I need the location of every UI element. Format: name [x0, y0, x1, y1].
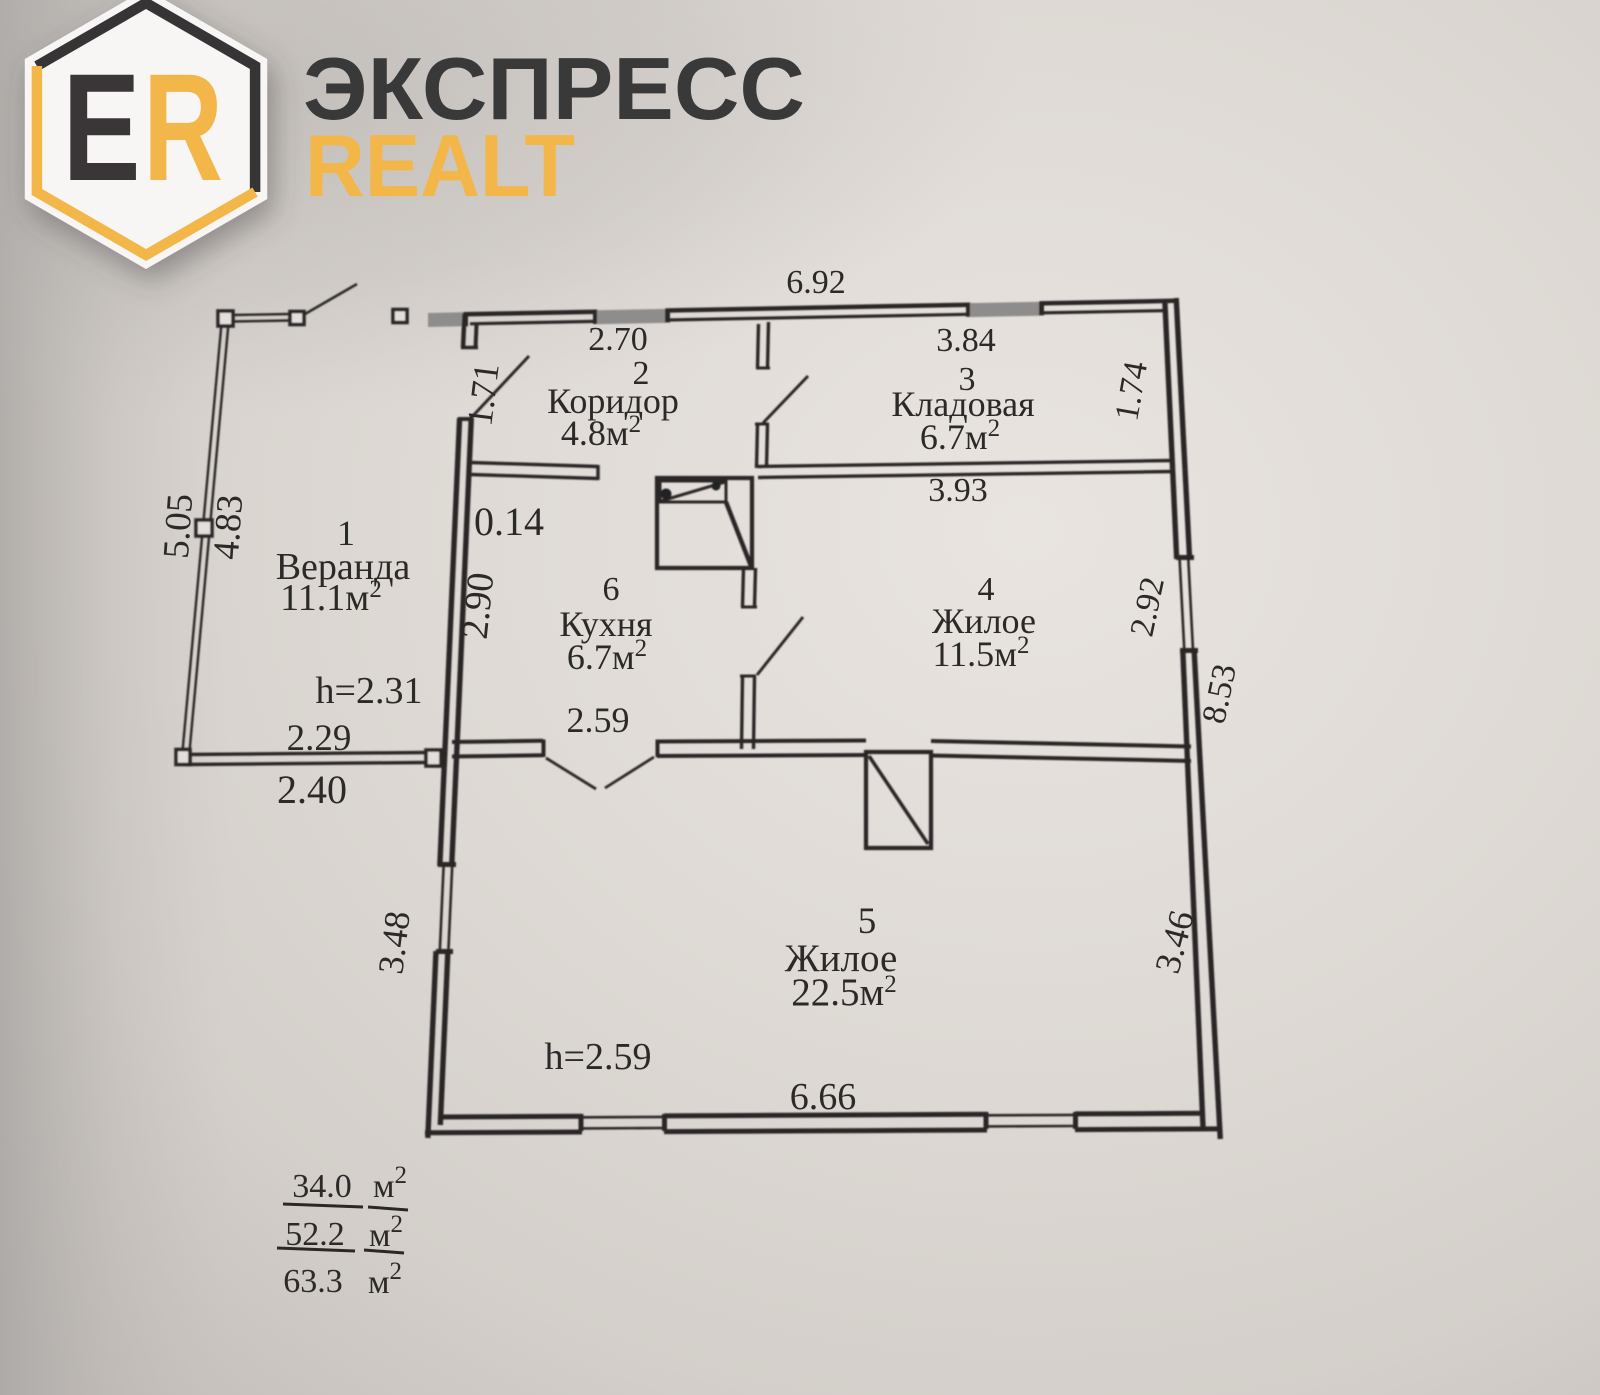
svg-text:2.90: 2.90	[454, 570, 503, 641]
svg-text:h=2.31: h=2.31	[316, 670, 423, 712]
svg-text:R: R	[143, 43, 223, 214]
svg-text:2.29: 2.29	[287, 718, 352, 759]
svg-text:REALT: REALT	[305, 116, 575, 215]
svg-text:2.59: 2.59	[567, 700, 630, 740]
svg-text:3.84: 3.84	[936, 322, 996, 359]
svg-text:h=2.59: h=2.59	[545, 1036, 652, 1078]
svg-text:5.05: 5.05	[156, 492, 201, 559]
svg-text:0.14: 0.14	[474, 499, 544, 544]
svg-text:2.70: 2.70	[588, 321, 648, 358]
svg-text:11.1м2: 11.1м2	[280, 576, 382, 619]
svg-text:4.83: 4.83	[206, 493, 251, 560]
svg-text:1.71: 1.71	[459, 361, 506, 428]
svg-text:E: E	[63, 42, 141, 213]
svg-text:11.5м2: 11.5м2	[933, 632, 1030, 674]
svg-text:6: 6	[603, 571, 620, 608]
svg-text:3.93: 3.93	[928, 472, 988, 509]
svg-text:63.3: 63.3	[283, 1263, 343, 1300]
svg-text:6.92: 6.92	[786, 264, 846, 301]
svg-text:22.5м2: 22.5м2	[791, 971, 896, 1014]
svg-text:34.0: 34.0	[292, 1168, 352, 1205]
svg-text:6.66: 6.66	[790, 1076, 857, 1118]
svg-text:3.48: 3.48	[370, 909, 417, 976]
svg-text:2.40: 2.40	[277, 767, 347, 812]
svg-text:5: 5	[858, 901, 877, 942]
